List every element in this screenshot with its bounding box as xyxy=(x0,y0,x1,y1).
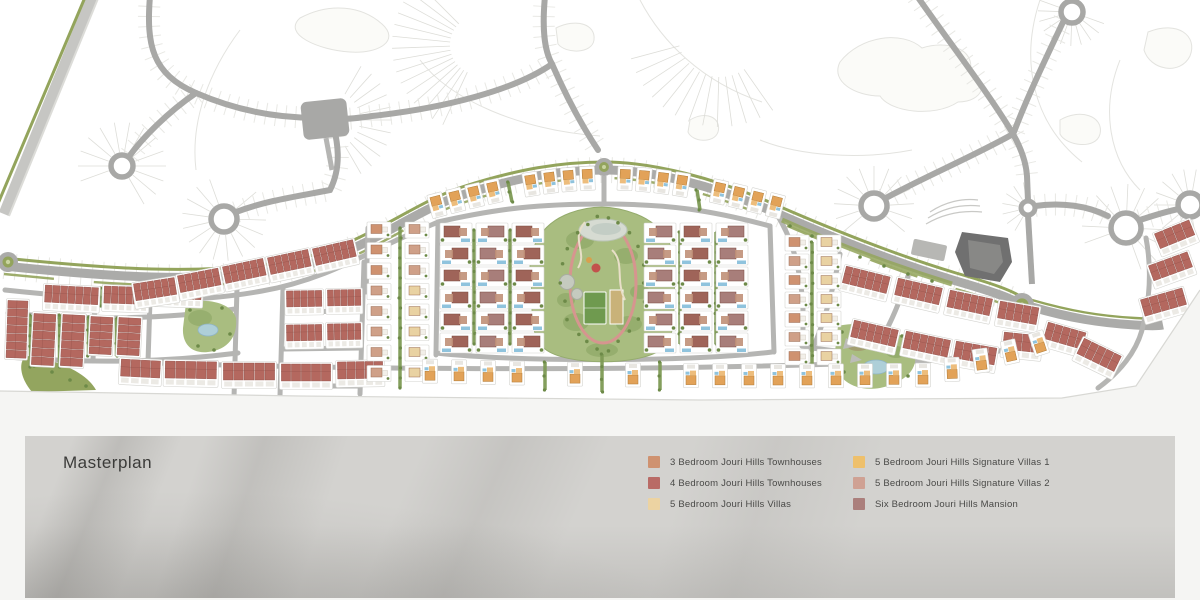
legend-item: Six Bedroom Jouri Hills Mansion xyxy=(853,498,1050,510)
legend-swatch xyxy=(648,477,660,489)
masterplan-panel: Masterplan 3 Bedroom Jouri Hills Townhou… xyxy=(25,436,1175,598)
legend-label: 4 Bedroom Jouri Hills Townhouses xyxy=(670,478,822,489)
legend-column-2: 5 Bedroom Jouri Hills Signature Villas 1… xyxy=(853,456,1050,510)
legend-label: 5 Bedroom Jouri Hills Villas xyxy=(670,499,791,510)
page: { "page": { "background": "#f5f5f3" }, "… xyxy=(0,0,1200,600)
legend-swatch xyxy=(853,477,865,489)
legend-item: 4 Bedroom Jouri Hills Townhouses xyxy=(648,477,822,489)
masterplan-map xyxy=(0,0,1200,432)
legend-swatch xyxy=(648,498,660,510)
legend-label: 5 Bedroom Jouri Hills Signature Villas 1 xyxy=(875,457,1050,468)
panel-title: Masterplan xyxy=(63,453,152,473)
legend-swatch xyxy=(853,456,865,468)
legend-item: 5 Bedroom Jouri Hills Signature Villas 1 xyxy=(853,456,1050,468)
legend-item: 5 Bedroom Jouri Hills Signature Villas 2 xyxy=(853,477,1050,489)
legend-label: 3 Bedroom Jouri Hills Townhouses xyxy=(670,457,822,468)
legend-item: 3 Bedroom Jouri Hills Townhouses xyxy=(648,456,822,468)
legend-label: 5 Bedroom Jouri Hills Signature Villas 2 xyxy=(875,478,1050,489)
legend-swatch xyxy=(648,456,660,468)
legend-label: Six Bedroom Jouri Hills Mansion xyxy=(875,499,1018,510)
legend-column-1: 3 Bedroom Jouri Hills Townhouses 4 Bedro… xyxy=(648,456,822,510)
legend-swatch xyxy=(853,498,865,510)
legend-item: 5 Bedroom Jouri Hills Villas xyxy=(648,498,822,510)
